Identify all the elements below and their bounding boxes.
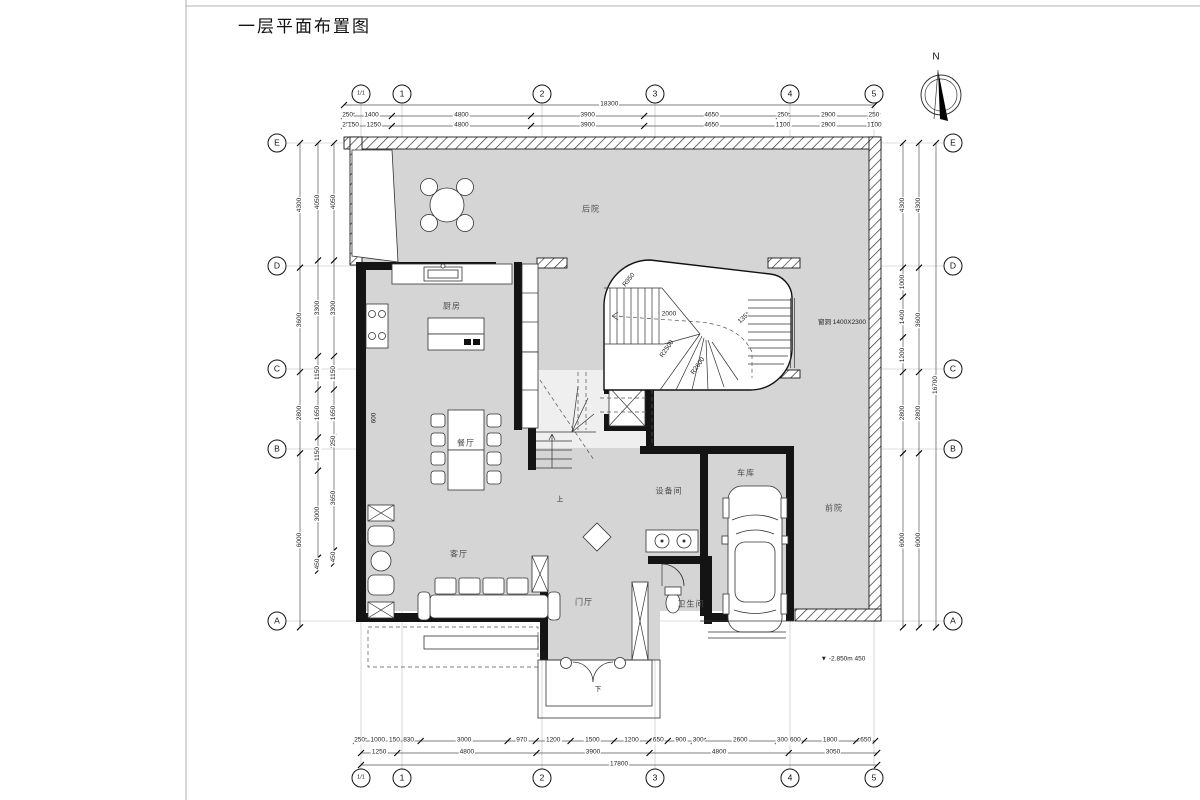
north-compass-icon: [921, 70, 961, 121]
grand-staircase: [604, 260, 795, 390]
floor-plan-drawing: [0, 0, 1200, 800]
